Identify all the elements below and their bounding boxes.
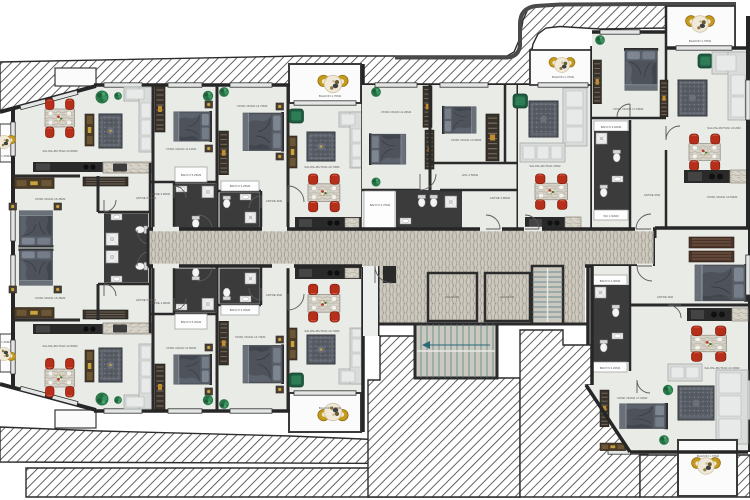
svg-text:YATAK ODASI 16.45M2: YATAK ODASI 16.45M2 xyxy=(35,296,66,300)
svg-text:ASANSÖR: ASANSÖR xyxy=(445,295,459,299)
svg-text:1.65M2: 1.65M2 xyxy=(1,154,11,158)
svg-text:ANTRE 1.90M2: ANTRE 1.90M2 xyxy=(150,301,171,305)
svg-text:ANTRE 3.80M2: ANTRE 3.80M2 xyxy=(490,196,511,200)
svg-text:BANYO 4.30M2: BANYO 4.30M2 xyxy=(600,279,621,283)
svg-text:YATAK ODASI 14.70M2: YATAK ODASI 14.70M2 xyxy=(235,335,266,339)
svg-text:BANYO 5.20M2: BANYO 5.20M2 xyxy=(181,320,202,324)
svg-text:YATAK ODASI 11.20M2: YATAK ODASI 11.20M2 xyxy=(381,110,412,114)
svg-text:BALKON 1.70M2: BALKON 1.70M2 xyxy=(319,94,342,98)
svg-text:BANYO 3.20M2: BANYO 3.20M2 xyxy=(600,366,621,370)
svg-text:YATAK ODASI 11.50M2: YATAK ODASI 11.50M2 xyxy=(166,346,197,350)
svg-text:BANYO 4.20M2: BANYO 4.20M2 xyxy=(230,308,251,312)
svg-text:BALKON 1.70M2: BALKON 1.70M2 xyxy=(697,454,720,458)
svg-text:ANTRE 5.30M2: ANTRE 5.30M2 xyxy=(136,196,157,200)
svg-text:YATAK ODASI 14.70M2: YATAK ODASI 14.70M2 xyxy=(237,104,268,108)
svg-text:YATAK ODASI 10.50M2: YATAK ODASI 10.50M2 xyxy=(707,195,738,199)
svg-text:SALON+MUTFAK 22.20M2: SALON+MUTFAK 22.20M2 xyxy=(704,366,740,370)
svg-text:YATAK ODASI 16.45M2: YATAK ODASI 16.45M2 xyxy=(35,197,66,201)
svg-text:BALKON 1.70M2: BALKON 1.70M2 xyxy=(552,75,575,79)
svg-text:SALON+MUTFAK 22.80M2: SALON+MUTFAK 22.80M2 xyxy=(42,149,78,153)
svg-text:SALON+MUTFAK 20.2M2: SALON+MUTFAK 20.2M2 xyxy=(707,126,741,130)
svg-text:YATAK ODASI 11.10M2: YATAK ODASI 11.10M2 xyxy=(166,147,197,151)
svg-text:SALON+MUTFAK 26M2: SALON+MUTFAK 26M2 xyxy=(529,164,561,168)
svg-text:YATAK ODASI 17.00M2: YATAK ODASI 17.00M2 xyxy=(613,107,644,111)
svg-text:SALON+MUTFAK 22.80M2: SALON+MUTFAK 22.80M2 xyxy=(42,344,78,348)
svg-text:1.65M2: 1.65M2 xyxy=(1,340,11,344)
svg-text:ASANSÖR: ASANSÖR xyxy=(500,295,514,299)
svg-text:ANTRE 3M2: ANTRE 3M2 xyxy=(266,199,283,203)
svg-text:SALON+MUTFAK 20.70M2: SALON+MUTFAK 20.70M2 xyxy=(304,165,340,169)
svg-text:BANYO 3.20M2: BANYO 3.20M2 xyxy=(601,125,622,129)
svg-text:SALON+MUTFAK 20.70M2: SALON+MUTFAK 20.70M2 xyxy=(304,329,340,333)
svg-text:ANTRE 3.90M2: ANTRE 3.90M2 xyxy=(150,192,171,196)
svg-text:ANTRE 4M2: ANTRE 4M2 xyxy=(644,193,661,197)
svg-text:BALKON 1.70M2: BALKON 1.70M2 xyxy=(689,39,712,43)
svg-text:YATAK ODASI 10.30M2: YATAK ODASI 10.30M2 xyxy=(451,138,482,142)
svg-text:ANTRE 4M2: ANTRE 4M2 xyxy=(657,295,674,299)
svg-text:YATAK ODASI 10.50M2: YATAK ODASI 10.50M2 xyxy=(712,296,743,300)
svg-text:BALKON 1.70M2: BALKON 1.70M2 xyxy=(319,406,342,410)
svg-text:HOL 2.50M2: HOL 2.50M2 xyxy=(462,173,479,177)
svg-text:BANYO 4.25M2: BANYO 4.25M2 xyxy=(230,184,251,188)
svg-text:YATAK ODASI 17.00M2: YATAK ODASI 17.00M2 xyxy=(617,396,648,400)
svg-text:BANYO 4.70M2: BANYO 4.70M2 xyxy=(370,203,391,207)
svg-text:ANTRE 3M2: ANTRE 3M2 xyxy=(266,293,283,297)
svg-text:BANYO 5.25M2: BANYO 5.25M2 xyxy=(181,173,202,177)
svg-text:WC 1.90M2: WC 1.90M2 xyxy=(603,214,619,218)
